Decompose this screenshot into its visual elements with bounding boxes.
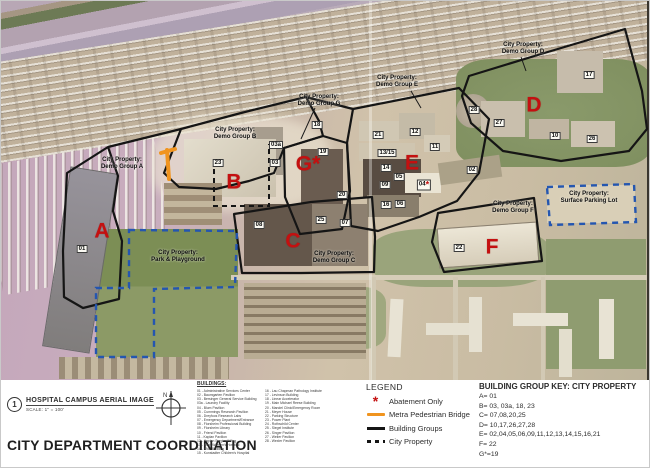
title-block: 1 HOSPITAL CAMPUS AERIAL IMAGE SCALE: 1"… [1, 380, 650, 468]
building-17-footprint [557, 51, 603, 93]
figure-scale: SCALE: 1" = 100' [26, 407, 154, 412]
buildings-list-heading: BUILDINGS: [197, 381, 337, 387]
asterisk-icon: * [366, 397, 385, 405]
figure-number-badge: 1 [7, 397, 22, 412]
road-vertical-3 [541, 277, 545, 380]
legend-item-orange-line: Metra Pedestrian Bridge [366, 410, 474, 419]
legend-heading: LEGEND [366, 382, 474, 392]
building-group-key-heading: BUILDING GROUP KEY: CITY PROPERTY [479, 382, 649, 391]
apartment-slab-6 [599, 299, 614, 359]
orange-line-icon [366, 411, 385, 419]
figure-title: HOSPITAL CAMPUS AERIAL IMAGE [26, 397, 154, 406]
apartment-slab-3 [469, 297, 482, 352]
legend-item-label: Metra Pedestrian Bridge [389, 410, 470, 419]
building-02-footprint [438, 155, 502, 185]
legend-item-label: Abatement Only [389, 397, 443, 406]
apartment-slab-1 [387, 299, 403, 358]
text-line: D= 10,17,26,27,28 [479, 421, 649, 431]
figure-number: 1 [12, 400, 16, 409]
photo-right-edge [647, 1, 649, 380]
group-b-lowrise-rows [164, 183, 222, 225]
road-horizontal [231, 275, 650, 280]
text-line: E= 02,04,05,06,09,11,12,13,14,15,16,21 [479, 430, 649, 440]
group-c-buildings [244, 204, 368, 266]
buildings-list: BUILDINGS: 01 - Administrative Services … [197, 381, 337, 456]
apartment-slab-4 [513, 313, 568, 326]
legend-item-label: Building Groups [389, 424, 442, 433]
building-10-footprint [529, 119, 569, 139]
apartment-slab-5 [559, 329, 572, 377]
legend-item-solid-line: Building Groups [366, 424, 474, 433]
parking-rows-with-cars [244, 283, 366, 359]
building-21-footprint [359, 121, 399, 141]
text-line: 15 - Kunstadter Children's Hospital [197, 451, 263, 455]
solid-line-icon [366, 424, 385, 432]
north-label: N [163, 393, 167, 399]
text-line: G*=19 [479, 450, 649, 460]
area-label: City Property:Demo Group F [492, 201, 534, 215]
text-line: A= 01 [479, 392, 649, 402]
building-06-16-footprint [367, 195, 419, 217]
building-group-key: BUILDING GROUP KEY: CITY PROPERTY A= 01B… [479, 382, 649, 459]
dashed-line-icon [366, 438, 385, 446]
building-11-footprint [424, 135, 450, 152]
legend-items: *Abatement OnlyMetra Pedestrian BridgeBu… [366, 397, 474, 447]
row-houses-south-west [59, 357, 229, 379]
building-04-footprint [405, 173, 441, 193]
buildings-list-col1: 01 - Administrative Services Center02 - … [197, 389, 263, 456]
surface-parking-lot-ground [547, 185, 635, 223]
north-compass-icon: N [153, 390, 189, 426]
building-26-footprint [571, 121, 615, 147]
buildings-list-col2: 16 - Lau Chapman Pathology Institute17 -… [265, 389, 331, 456]
legend-item-label: City Property [389, 437, 432, 446]
text-line: B= 03, 03a, 18, 23 [479, 402, 649, 412]
aerial-photo: ABCDEFG* City Property:Demo Group ACity … [1, 1, 650, 380]
legend: LEGEND *Abatement OnlyMetra Pedestrian B… [366, 382, 474, 446]
park-lawn [96, 229, 238, 357]
legend-item-asterisk: *Abatement Only [366, 397, 474, 406]
figure-caption: 1 HOSPITAL CAMPUS AERIAL IMAGE SCALE: 1"… [7, 397, 154, 412]
building-27-footprint [481, 101, 525, 137]
building-22-footprint [437, 222, 540, 269]
plan-sheet: ABCDEFG* City Property:Demo Group ACity … [0, 0, 650, 468]
building-group-key-entries: A= 01B= 03, 03a, 18, 23C= 07,08,20,25D= … [479, 392, 649, 459]
text-line: F= 22 [479, 440, 649, 450]
text-line: C= 07,08,20,25 [479, 411, 649, 421]
legend-item-dashed-line: City Property [366, 437, 474, 446]
building-number-18: 18 [312, 121, 323, 129]
scan-seam [369, 1, 372, 380]
text-line: 28 - Wexler Pavilion [265, 439, 331, 443]
